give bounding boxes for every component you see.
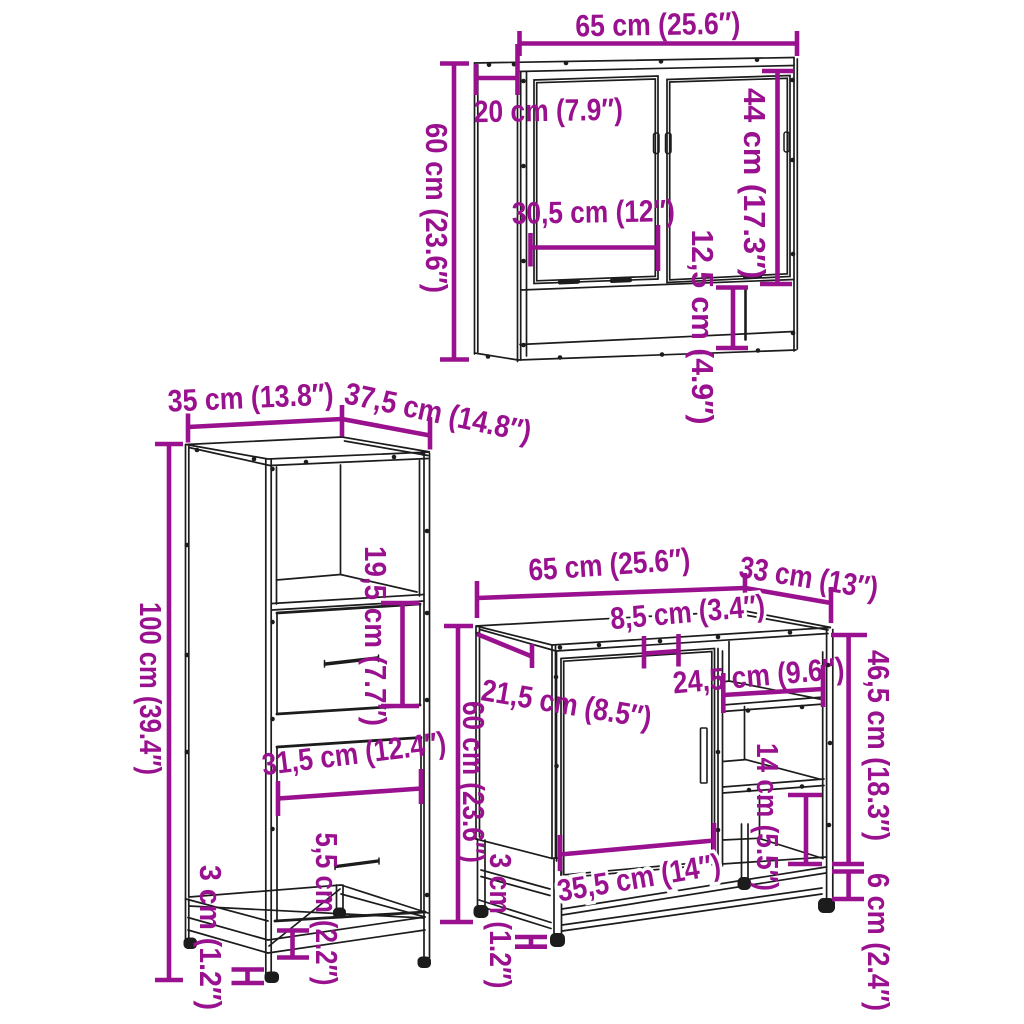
svg-text:19,5 cm (7.7″): 19,5 cm (7.7″) xyxy=(358,546,393,726)
svg-text:60 cm (23.6″): 60 cm (23.6″) xyxy=(456,701,491,863)
svg-text:12,5 cm (4.9″): 12,5 cm (4.9″) xyxy=(685,230,720,425)
svg-text:5,5 cm (2.2″): 5,5 cm (2.2″) xyxy=(309,833,344,986)
svg-text:6 cm (2.4″): 6 cm (2.4″) xyxy=(861,873,896,1011)
svg-text:20 cm (7.9″): 20 cm (7.9″) xyxy=(474,92,624,130)
svg-text:46,5 cm (18.3″): 46,5 cm (18.3″) xyxy=(861,650,896,841)
svg-text:44 cm (17.3″): 44 cm (17.3″) xyxy=(737,88,772,279)
svg-text:14 cm (5.5″): 14 cm (5.5″) xyxy=(750,743,785,891)
svg-text:65 cm (25.6″): 65 cm (25.6″) xyxy=(575,6,741,44)
svg-text:3 cm (1.2″): 3 cm (1.2″) xyxy=(483,854,518,989)
svg-text:100 cm (39.4″): 100 cm (39.4″) xyxy=(133,602,168,775)
svg-text:35 cm (13.8″): 35 cm (13.8″) xyxy=(167,376,334,418)
svg-text:30,5 cm (12″): 30,5 cm (12″) xyxy=(512,193,676,231)
svg-text:3 cm (1.2″): 3 cm (1.2″) xyxy=(193,865,228,1010)
svg-text:60 cm (23.6″): 60 cm (23.6″) xyxy=(419,123,454,293)
